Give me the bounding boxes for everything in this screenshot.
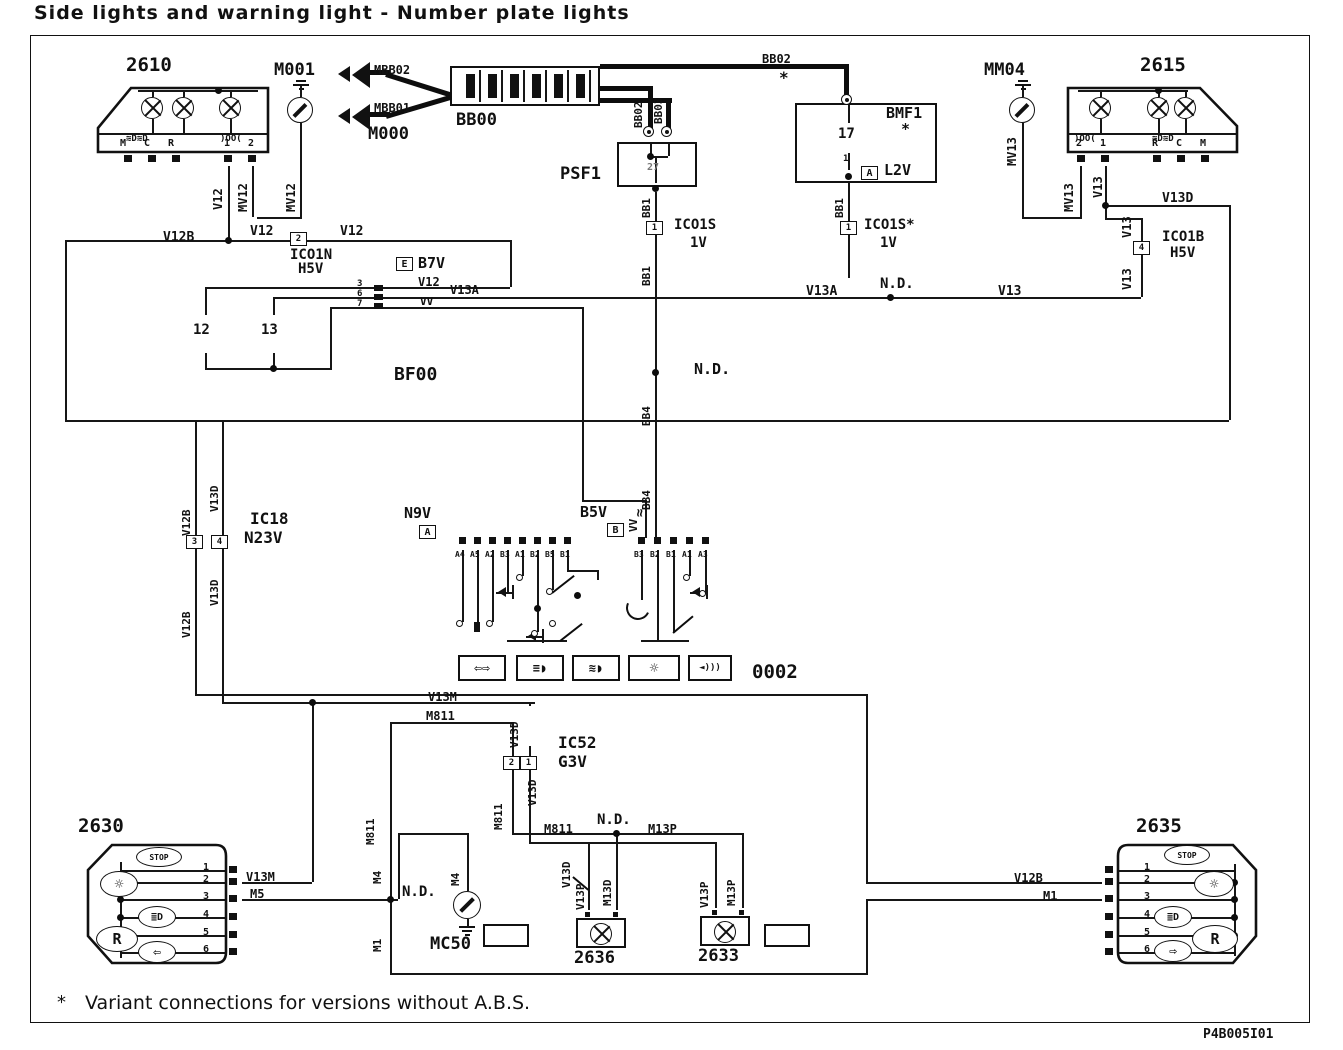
reverse-lamp-icon: R	[1192, 925, 1238, 953]
turn-signal-switch-icon: ⇦⇨	[458, 655, 506, 681]
wire-label: M811	[365, 819, 377, 846]
wire-label: V13D	[509, 722, 521, 749]
plus-terminal	[841, 94, 852, 105]
connector-pin	[489, 537, 496, 544]
connector-pin	[654, 537, 661, 544]
contact-circle	[486, 620, 493, 627]
pin-label: A1	[682, 551, 692, 559]
connector-ic01b-sub: H5V	[1170, 246, 1195, 261]
contact-circle	[531, 630, 538, 637]
connector-b7v-label: B7V	[418, 256, 445, 272]
reverse-lamp-icon: R	[96, 926, 138, 952]
connector-pin	[124, 155, 132, 162]
connector-pin	[1105, 866, 1113, 873]
terminal-label: M	[1200, 139, 1206, 150]
horn-icon: ◄)))	[688, 655, 732, 681]
wire-label: V13A	[806, 285, 837, 299]
contact-circle	[699, 590, 706, 597]
position-light-icon: )OO(	[220, 135, 242, 144]
wire-label: V12	[250, 225, 273, 239]
connector-ic01n-sub: H5V	[298, 262, 323, 277]
nd-splice-label: N.D.	[402, 885, 436, 900]
wire-label: V13D	[209, 580, 221, 607]
connector-pin	[248, 155, 256, 162]
stop-lamp-icon: STOP	[1164, 845, 1210, 865]
terminal-label: 2	[203, 875, 209, 886]
footnote-star: *	[57, 994, 66, 1013]
wire-label: BB02	[633, 102, 645, 129]
wire-label: M1	[372, 939, 384, 952]
connector-pin-cell: 4	[211, 535, 228, 549]
connector-pin	[519, 537, 526, 544]
connector-pin	[549, 537, 556, 544]
connector-ic01s-star-label: ICO1S*	[864, 218, 915, 233]
component-mc50-label: MC50	[430, 936, 471, 954]
connector-pin-cell: 1	[840, 221, 857, 235]
warning-bulb-icon: ☼	[100, 871, 138, 897]
terminal-label: 27	[647, 163, 659, 174]
fuse-13-label: 13	[261, 323, 278, 338]
wire-label: BB03	[653, 98, 665, 125]
lighting-switch-icon: ☼	[628, 655, 680, 681]
connector-ic52-label: IC52	[558, 735, 597, 752]
wire-label: V13A	[450, 284, 479, 297]
fuse-12-label: 12	[193, 323, 210, 338]
connector-pin	[229, 913, 237, 920]
contact-circle	[456, 620, 463, 627]
wire-label: M4	[450, 873, 462, 886]
harness-code-a: A	[861, 166, 878, 180]
terminal-label: 2	[248, 139, 254, 150]
terminal-label: 1	[1100, 139, 1106, 150]
connector-b5v-label: B5V	[580, 505, 607, 521]
wire-label: MV12	[237, 183, 250, 212]
fuse-17-label: 17	[838, 127, 855, 142]
wire-label: MBB02	[374, 64, 410, 77]
connector-pin-cell: 2	[290, 232, 307, 246]
connector-pin	[1153, 155, 1161, 162]
nd-splice-label: N.D.	[880, 277, 914, 292]
page-title: Side lights and warning light - Number p…	[34, 4, 630, 24]
wire-label: V12B	[181, 612, 193, 639]
connector-pin	[229, 895, 237, 902]
wire-label: MV13	[1063, 183, 1076, 212]
schematic-canvas: Side lights and warning light - Number p…	[0, 0, 1343, 1050]
component-bb00-label: BB00	[456, 112, 497, 130]
pin-label: A4	[455, 551, 465, 559]
component-m000-label: M000	[368, 126, 409, 144]
wire-label: M811	[426, 710, 455, 723]
wire-label: V13	[1092, 176, 1105, 198]
pin-label: B3	[500, 551, 510, 559]
connector-pin	[670, 537, 677, 544]
connector-pin	[564, 537, 571, 544]
connector-l2v-label: L2V	[884, 163, 911, 179]
connector-pin	[1105, 913, 1113, 920]
harness-code-e: E	[396, 257, 413, 271]
stop-lamp-icon: STOP	[136, 847, 182, 867]
connector-ic18-label: IC18	[250, 511, 289, 528]
connector-pin	[374, 303, 383, 309]
terminal-label: 7	[357, 300, 362, 309]
nd-splice-label: N.D.	[597, 813, 631, 828]
wire-label: V13	[1121, 268, 1134, 290]
pin-label: B2	[650, 551, 660, 559]
connector-pin	[1201, 155, 1209, 162]
wire-label: M811	[493, 804, 505, 831]
connector-ic01b-label: ICO1B	[1162, 230, 1204, 245]
contact-circle	[549, 620, 556, 627]
wire-label: BB4	[641, 490, 653, 510]
wire-label: BB1	[834, 198, 846, 218]
drawing-ref-code: P4B005I01	[1203, 1028, 1273, 1042]
connector-pin-cell: 4	[1133, 241, 1150, 255]
component-box	[488, 74, 497, 98]
component-0002-label: 0002	[752, 663, 798, 683]
wire-label: MBB01	[374, 102, 410, 115]
wire-label: BB1	[641, 266, 653, 286]
component-box	[474, 622, 480, 632]
component-2615-label: 2615	[1140, 56, 1186, 76]
terminal-label: R	[168, 139, 174, 150]
component-bf00-label: BF00	[394, 366, 437, 385]
wire-label: M13D	[602, 880, 614, 907]
terminal-label: C	[1176, 139, 1182, 150]
fog-lamp-icon: ≣D	[1154, 906, 1192, 928]
connector-pin-cell: 1	[646, 221, 663, 235]
pin-label: A2	[485, 551, 495, 559]
connector-ic01s-sub: 1V	[690, 236, 707, 251]
connector-pin	[229, 931, 237, 938]
wire-label: V13D	[527, 780, 539, 807]
terminal-label: 3	[1144, 892, 1150, 903]
connector-pin	[1077, 155, 1085, 162]
component-box	[554, 74, 563, 98]
connector-pin	[229, 948, 237, 955]
connector-pin	[739, 910, 744, 915]
wire-label: BB4	[641, 406, 653, 426]
wire-label: V13D	[561, 862, 573, 889]
component-2636-label: 2636	[574, 950, 615, 968]
turn-signal-icon: ⇨	[1154, 940, 1192, 962]
bulb-icon	[141, 97, 163, 119]
wire-label: V13P	[575, 884, 587, 911]
terminal-label: 1	[1144, 863, 1150, 874]
connector-pin	[504, 537, 511, 544]
wire-label: V13	[998, 285, 1021, 299]
connector-pin	[229, 866, 237, 873]
pin-label: B5	[545, 551, 555, 559]
component-box	[532, 74, 541, 98]
connector-pin-cell: 2	[503, 756, 520, 770]
plus-terminal	[661, 126, 672, 137]
connector-pin	[585, 912, 590, 917]
bulb-icon	[1147, 97, 1169, 119]
connector-pin-cell: 3	[186, 535, 203, 549]
wire-label: V13M	[428, 691, 457, 704]
wire-label: V13D	[209, 486, 221, 513]
connector-pin	[1105, 948, 1113, 955]
terminal-label: 6	[1144, 945, 1150, 956]
wire-label: V13D	[1162, 192, 1193, 206]
terminal-label: 6	[203, 945, 209, 956]
terminal-label: 3	[203, 892, 209, 903]
wire-label: V12	[212, 188, 225, 210]
component-2630-label: 2630	[78, 817, 124, 837]
component-2610-label: 2610	[126, 56, 172, 76]
sidelight-icon: ≋D≋D	[126, 135, 148, 144]
component-box	[576, 74, 585, 98]
connector-pin	[148, 155, 156, 162]
connector-pin	[1105, 895, 1113, 902]
wire-label: VV	[420, 296, 433, 308]
wire-label: V13M	[246, 871, 275, 884]
wire-label: V12	[418, 276, 440, 289]
earth-point-icon	[287, 97, 313, 123]
harness-code-a: A	[419, 525, 436, 539]
component-m001-label: M001	[274, 62, 315, 80]
connector-pin	[229, 878, 237, 885]
connector-pin	[1105, 878, 1113, 885]
connector-pin	[374, 285, 383, 291]
pin-label: B1	[560, 551, 570, 559]
connector-pin	[374, 294, 383, 300]
wire-label: V12	[340, 225, 363, 239]
connector-pin	[686, 537, 693, 544]
connector-pin	[702, 537, 709, 544]
wire-label: V12B	[1014, 872, 1043, 885]
wire-label: V13	[1121, 216, 1134, 238]
wire-label: VV	[628, 519, 640, 532]
variant-star: *	[779, 70, 789, 87]
terminal-label: 5	[1144, 928, 1150, 939]
contact-circle	[546, 588, 553, 595]
terminal-label: 4	[203, 910, 209, 921]
sidelight-icon: ≋D≋D	[1152, 135, 1174, 144]
wire-label: M5	[250, 888, 264, 901]
variant-star: *	[901, 122, 910, 138]
contact-circle	[683, 574, 690, 581]
connector-ic18-sub: N23V	[244, 530, 283, 547]
nd-splice-label: N.D.	[694, 362, 730, 378]
dipped-beam-icon: ≡◗	[516, 655, 564, 681]
pin-label: B1	[666, 551, 676, 559]
connector-pin	[172, 155, 180, 162]
wire-label: MV13	[1006, 137, 1019, 166]
connector-ic01s-star-sub: 1V	[880, 236, 897, 251]
connector-pin	[534, 537, 541, 544]
pin-label: B3	[634, 551, 644, 559]
connector-pin	[224, 155, 232, 162]
wire-label: MV12	[285, 183, 298, 212]
connector-ic01s-label: ICO1S	[674, 218, 716, 233]
pin-label: A3	[698, 551, 708, 559]
connector-ic52-sub: G3V	[558, 754, 587, 771]
connector-pin	[712, 910, 717, 915]
component-psf1-label: PSF1	[560, 166, 601, 184]
connector-pin	[1177, 155, 1185, 162]
position-light-icon: )OO(	[1074, 135, 1096, 144]
bulb-icon	[1174, 97, 1196, 119]
wire-label: V12B	[181, 510, 193, 537]
contact-circle	[516, 574, 523, 581]
terminal-label: 4	[1144, 910, 1150, 921]
wire-label: M1	[1043, 890, 1057, 903]
component-2635-label: 2635	[1136, 817, 1182, 837]
terminal-label: 1	[843, 155, 848, 164]
connector-pin-cell: 1	[520, 756, 537, 770]
wire-label: BB1	[641, 198, 653, 218]
fog-lamp-icon: ≣D	[138, 906, 176, 928]
bulb-icon	[1089, 97, 1111, 119]
footnote-text: Variant connections for versions without…	[85, 994, 530, 1014]
bulb-icon	[172, 97, 194, 119]
component-mm04-label: MM04	[984, 62, 1025, 80]
connector-pin	[1101, 155, 1109, 162]
wire-label: M811	[544, 823, 573, 836]
harness-code-b: B	[607, 523, 624, 537]
wire-label: V13P	[699, 882, 711, 909]
pin-label: A5	[470, 551, 480, 559]
wire-label: M13P	[726, 880, 738, 907]
bulb-icon	[590, 923, 612, 945]
connector-pin	[459, 537, 466, 544]
bulb-icon	[714, 921, 736, 943]
resistive-wire-symbol: ≈	[633, 509, 648, 517]
lamp-housings	[0, 0, 1343, 1050]
component-box	[510, 74, 519, 98]
terminal-label: 2	[1144, 875, 1150, 886]
wire-label: BB02	[762, 53, 791, 66]
turn-signal-icon: ⇦	[138, 941, 176, 963]
wire-label: V12B	[163, 231, 194, 245]
connector-pin	[1105, 931, 1113, 938]
wire-label: M13P	[648, 823, 677, 836]
component-box	[466, 74, 475, 98]
pin-label: B2	[530, 551, 540, 559]
connector-pin	[638, 537, 645, 544]
wire-label: M4	[372, 871, 384, 884]
main-beam-icon: ≋◗	[572, 655, 620, 681]
connector-pin	[613, 912, 618, 917]
pin-label: A1	[515, 551, 525, 559]
terminal-label: 5	[203, 928, 209, 939]
connector-pin	[474, 537, 481, 544]
earth-point-icon	[1009, 97, 1035, 123]
terminal-label: 1	[203, 863, 209, 874]
component-2633-label: 2633	[698, 948, 739, 966]
bulb-icon	[219, 97, 241, 119]
connector-n9v-label: N9V	[404, 506, 431, 522]
warning-bulb-icon: ☼	[1194, 871, 1234, 897]
earth-point-icon	[453, 891, 481, 919]
